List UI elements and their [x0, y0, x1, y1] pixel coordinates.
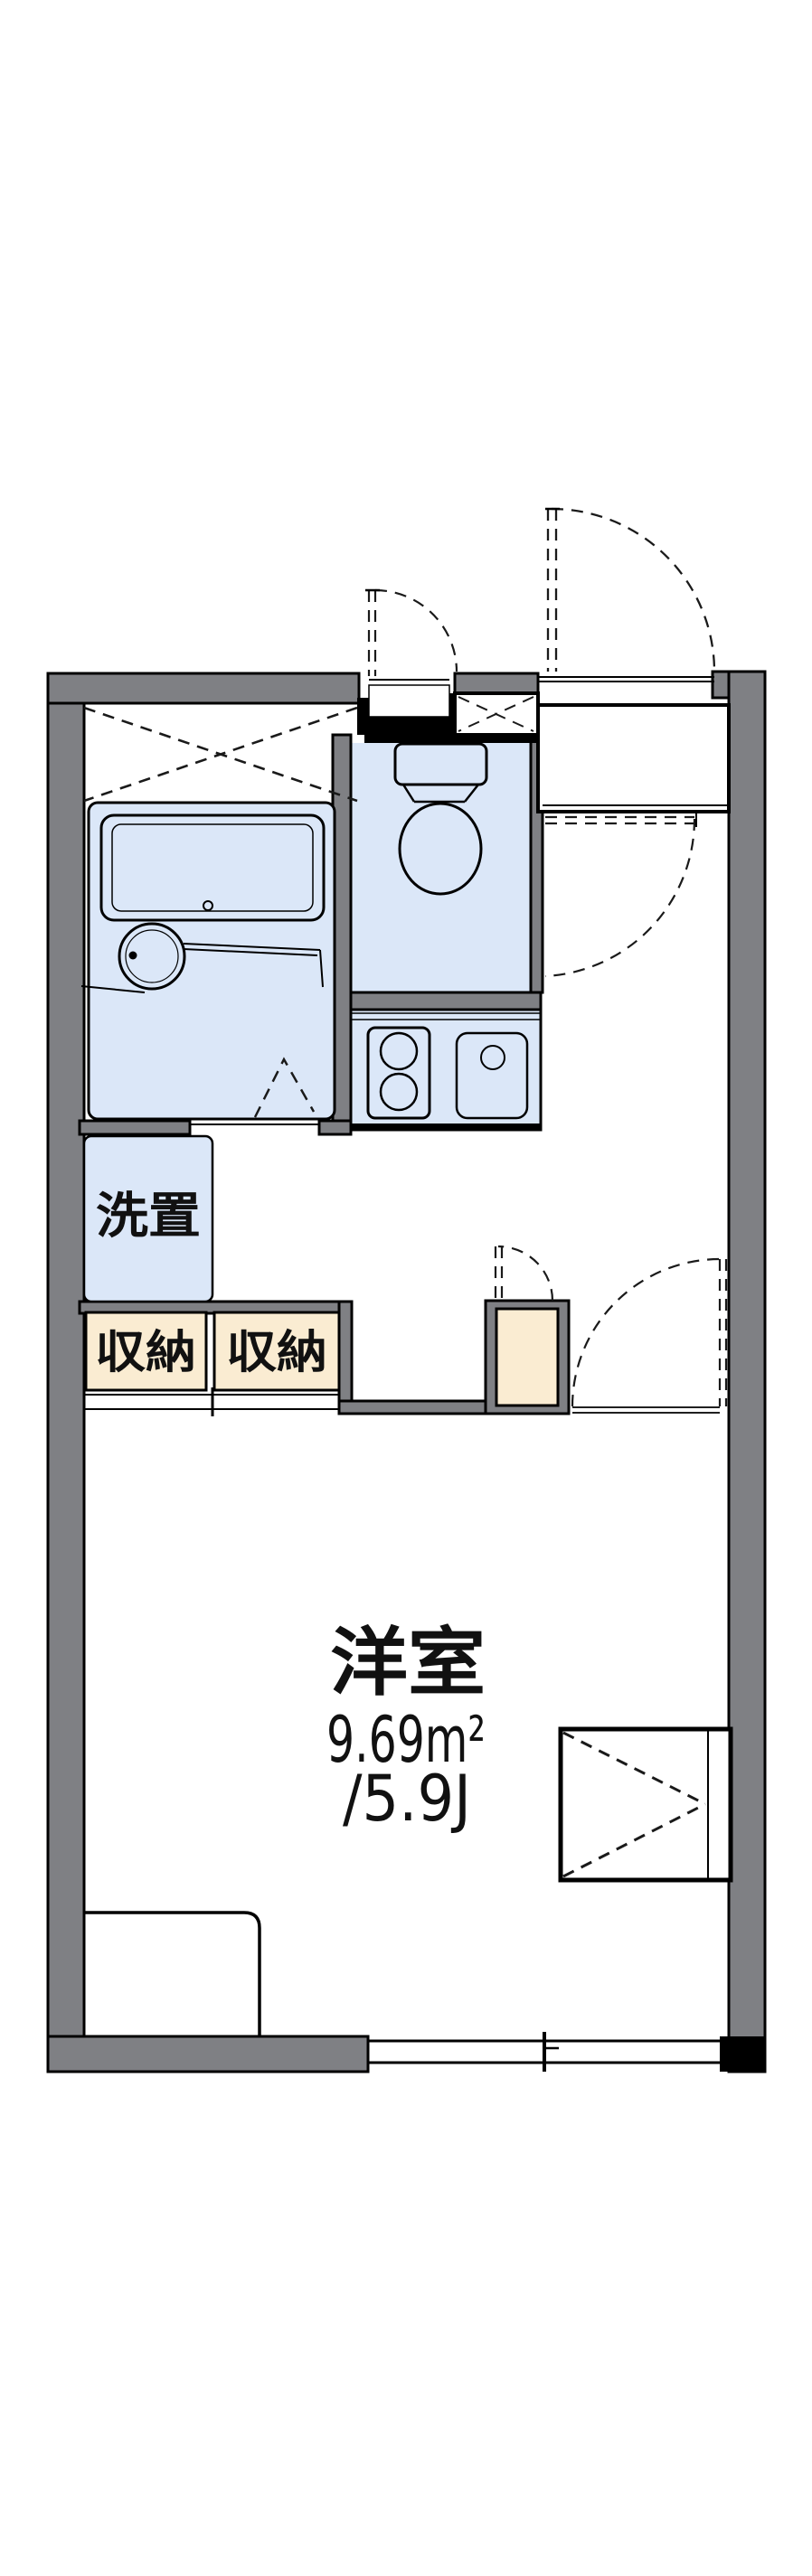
washbasin-faucet: [129, 952, 137, 960]
corridor-box-inner: [496, 1309, 558, 1406]
box-door-leaf: [496, 1246, 502, 1301]
bed: [84, 1913, 260, 2036]
hall-crossmark: [84, 708, 357, 801]
meterbox-door-swing: [375, 590, 457, 672]
storage-right-label: 収納: [226, 1326, 327, 1378]
room-door-leaf: [720, 1259, 726, 1406]
corridor-box: [486, 1246, 569, 1414]
hall-door-leaf: [545, 817, 694, 823]
room-door-threshold: [572, 1407, 720, 1413]
room-tatami-label: /5.9J: [343, 1762, 471, 1836]
room-label: 洋室: [330, 1621, 486, 1706]
toilet-bowl: [400, 804, 481, 894]
wall-top-left: [48, 673, 359, 703]
storage-units: 収納 収納: [84, 1312, 339, 1416]
hall-door-swing: [545, 819, 694, 976]
wall-top-mid: [455, 673, 538, 693]
wall-right: [729, 672, 765, 2072]
storage-left-label: 収納: [95, 1326, 196, 1378]
laundry-space: 洗置: [84, 1136, 212, 1302]
wall-room-top: [339, 1401, 486, 1414]
western-room: 洋室 9.69m² /5.9J: [84, 1621, 731, 2037]
room-door-swing: [572, 1259, 720, 1406]
entrance-door-swing: [552, 509, 714, 672]
wall-meterbox-bottom: [364, 717, 452, 735]
sliding-window: [368, 2032, 722, 2072]
meterbox-door-leaf: [369, 590, 375, 676]
toilet-tank: [395, 744, 486, 785]
entrance-door-leaf: [548, 509, 556, 672]
kitchen-counter-front-edge: [351, 1123, 541, 1130]
wall-left: [48, 673, 84, 2072]
wall-toilet-bottom: [351, 992, 541, 1010]
wall-bottom-right-corner: [720, 2036, 765, 2072]
wall-bath-bottom-right: [319, 1121, 351, 1134]
kitchen: [351, 1010, 541, 1130]
wall-bath-bottom-left: [80, 1121, 190, 1134]
laundry-label: 洗置: [96, 1188, 201, 1245]
meter-box: [369, 685, 449, 717]
wall-bottom-left: [48, 2036, 368, 2072]
closet: [561, 1729, 731, 1880]
floorplan-page: 洗置 収納 収納 洋室 9.69m² /: [0, 0, 812, 2576]
floorplan-svg: 洗置 収納 収納 洋室 9.69m² /: [0, 0, 812, 2576]
genkan-step: [538, 705, 729, 812]
wall-storage-side: [339, 1302, 352, 1414]
bathroom: [81, 803, 335, 1124]
entrance-sill: [538, 677, 714, 682]
box-door-swing: [498, 1246, 552, 1301]
